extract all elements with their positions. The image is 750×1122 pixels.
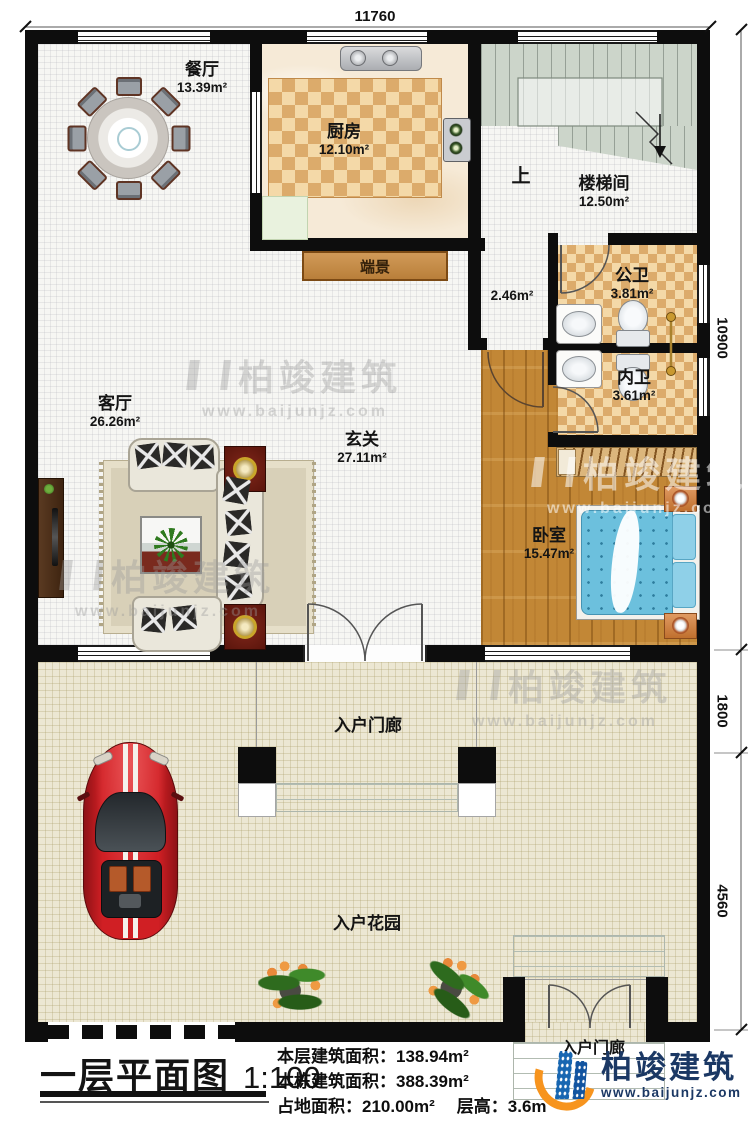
room-area: 13.39m² [177,80,227,96]
room-area: 27.11m² [337,450,387,466]
car-engine-block [109,866,127,892]
room-name: 公卫 [611,266,654,286]
porch-column [458,747,496,783]
wall-segment [481,338,487,350]
wall-segment [468,44,481,350]
wall-segment [646,977,668,1042]
sofa-cushion [189,444,215,470]
room-area: 15.47m² [524,546,574,562]
foyer-door-opening [303,645,427,662]
room-name: 玄关 [337,430,387,450]
wall-segment [548,435,697,447]
dim-right-upper: 10900 [714,317,731,359]
bath-sink-basin [562,311,596,337]
company-logo: 柏竣建筑 www.baijunjz.com [541,1051,742,1109]
sofa-cushion [141,607,167,633]
stats-value: 138.94m² [396,1047,469,1066]
stove-burner [449,123,463,137]
wall-segment [25,645,78,662]
stats-label: 层高： [457,1097,508,1116]
wardrobe-shelf [558,449,576,475]
end-table-inlay [233,615,257,639]
room-area: 12.50m² [579,194,630,210]
room-name: 卧室 [524,526,574,546]
dim-tick [736,644,747,655]
room-area: 26.26m² [90,414,140,430]
car-engine-block [133,866,151,892]
car-windshield [95,792,166,852]
sofa-cushion [222,476,251,505]
porch2-steps [513,935,665,977]
wall-segment [503,977,525,1042]
area-stats: 本层建筑面积：138.94m² 本栋建筑面积：388.39m² 占地面积：210… [277,1044,547,1119]
kitchen-sliding-door [250,92,262,193]
porch2-threshold [525,979,646,980]
porch-column-base [238,783,276,817]
kitchen-mat [262,196,308,240]
car [83,742,178,940]
dim-right-lower: 4560 [714,884,731,917]
stats-label: 本栋建筑面积： [277,1072,396,1091]
column-guide-line [476,662,477,747]
window [307,30,427,44]
bath-sink-basin [562,356,596,382]
wall-segment [25,30,38,1042]
dim-tick [736,24,747,35]
room-label-garden: 入户花园 [333,914,401,934]
column-guide-line [256,662,257,747]
stair-treads-upper [481,44,697,126]
stove-burner [449,141,463,155]
room-name: 楼梯间 [579,174,630,194]
wall-segment [630,645,710,662]
rug-fringe [312,462,316,630]
porch-column-base [458,783,496,817]
wall-segment [250,193,262,238]
room-area: 3.61m² [613,388,656,404]
room-name: 餐厅 [177,60,227,80]
room-name: 内卫 [613,368,656,388]
room-label-public-bath: 公卫 3.81m² [611,266,654,301]
dining-chair [116,181,142,200]
tv-plant [44,484,54,494]
wall-segment [427,30,518,44]
room-label-private-bath: 内卫 3.61m² [613,368,656,403]
dashed-wall [48,1025,235,1039]
stats-line2: 本栋建筑面积：388.39m² [277,1069,547,1094]
dining-chair [116,77,142,96]
stats-label: 占地面积： [277,1097,362,1116]
room-label-dining: 餐厅 13.39m² [177,60,227,95]
car-engine-detail [119,894,141,908]
sofa-cushion [134,442,161,469]
window [78,30,210,44]
dining-chair [172,126,191,152]
room-area: 12.10m² [319,142,369,158]
coffee-table-plant [154,528,188,562]
bed-pillow [672,514,696,560]
kitchen-sink-basin [350,50,366,66]
stats-label: 本层建筑面积： [277,1047,396,1066]
room-label-bedroom: 卧室 15.47m² [524,526,574,561]
wall-segment [697,30,710,265]
dining-chair [68,126,87,152]
sofa-cushion [162,442,188,468]
room-label-porch: 入户门廊 [334,716,402,736]
wall-segment [668,1022,710,1042]
company-website: www.baijunjz.com [601,1085,742,1100]
window [697,265,710,323]
garden-plant [258,956,328,1020]
company-logo-text: 柏竣建筑 www.baijunjz.com [601,1051,742,1100]
dim-top-value: 11760 [355,8,396,25]
stats-value: 388.39m² [396,1072,469,1091]
nightstand-lamp [672,490,689,507]
porch2-floor [525,1022,646,1042]
toilet-bowl [618,300,648,334]
stats-line1: 本层建筑面积：138.94m² [277,1044,547,1069]
company-logo-icon [541,1051,593,1109]
tv-screen [52,508,58,566]
porch-column [238,747,276,783]
sofa-cushion [224,572,253,601]
bed-pillow [672,562,696,608]
stair-up-label: 上 [511,166,530,188]
dim-tick [736,747,747,758]
stats-value: 210.00m² [362,1097,435,1116]
wall-segment [697,323,710,358]
tv-cabinet [38,478,64,598]
sofa-cushion [225,509,252,536]
kitchen-sink-basin [382,50,398,66]
toilet-tank [616,330,650,347]
sofa-cushion [171,605,198,632]
sofa-cushion [223,541,251,569]
title-underline-thin [40,1101,269,1103]
dim-right-middle: 1800 [714,694,731,727]
wall-segment [37,1022,48,1042]
window [518,30,657,44]
window [697,358,710,416]
dining-table-center [117,127,141,151]
room-label-stair: 楼梯间 12.50m² [579,174,630,209]
console-label: 端景 [360,256,390,277]
company-name: 柏竣建筑 [601,1051,742,1085]
dim-tick [736,1024,747,1035]
window [485,645,630,662]
room-label-living: 客厅 26.26m² [90,394,140,429]
wall-segment [608,233,697,245]
wall-segment [427,645,485,662]
hall-area-label: 2.46m² [491,288,534,304]
room-area: 3.81m² [611,286,654,302]
wardrobe [556,447,697,477]
room-name: 厨房 [319,122,369,142]
wall-segment [250,44,262,92]
room-label-foyer: 玄关 27.11m² [337,430,387,465]
porch-steps [276,783,458,812]
room-label-kitchen: 厨房 12.10m² [319,122,369,157]
title-underline-thick [40,1091,266,1097]
rug-fringe [99,462,103,630]
room-name: 客厅 [90,394,140,414]
end-table [224,604,266,650]
stats-line3: 占地面积：210.00m²层高：3.6m [277,1094,547,1119]
floorplan-page: 端景 [0,0,750,1122]
wall-segment [210,30,307,44]
nightstand-lamp [672,617,689,634]
console-cabinet: 端景 [302,251,448,281]
